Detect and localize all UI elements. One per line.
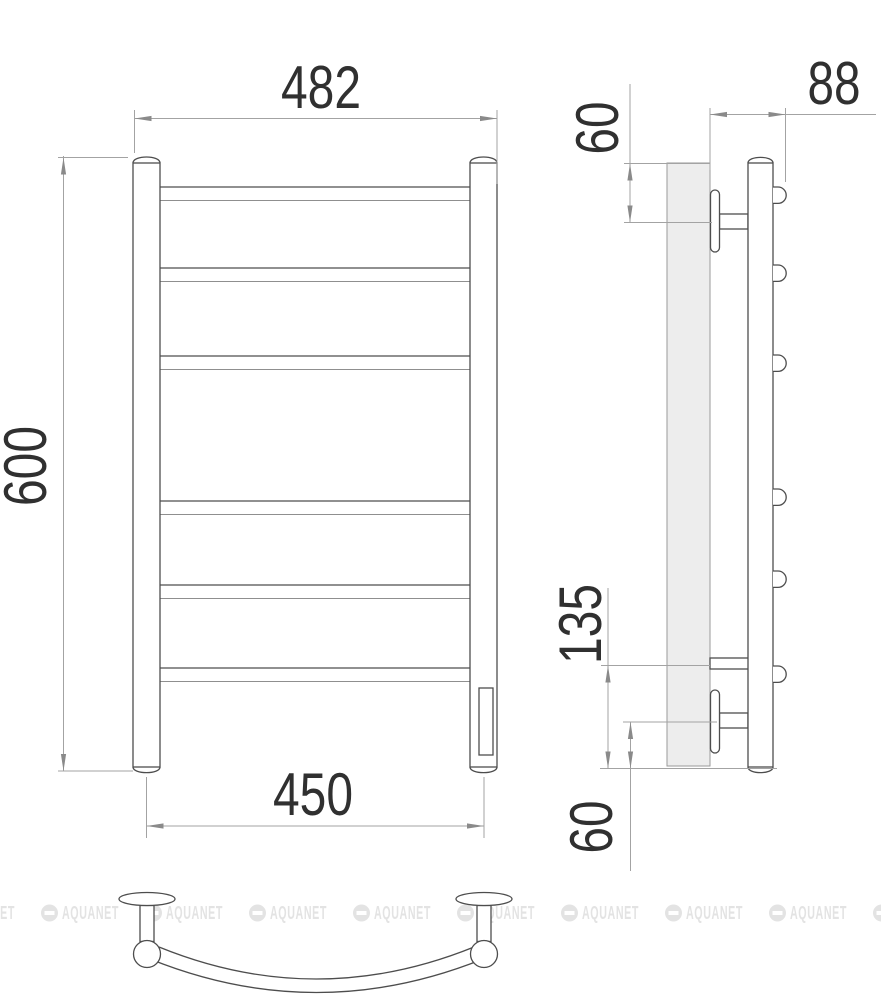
watermark-item: AQUANET [665, 903, 743, 923]
rung [160, 268, 470, 282]
rung [160, 668, 470, 682]
watermark-item: AQUANET [249, 903, 327, 923]
bottom-bracket [710, 658, 749, 753]
watermark-logo-bar [253, 911, 263, 915]
watermark-logo-bar [669, 911, 679, 915]
rung [160, 356, 470, 370]
wall-plate [667, 163, 710, 766]
front-view: 482 600 450 [0, 54, 497, 838]
side-rung-ends [773, 187, 786, 682]
dimension-front-top-width: 482 [135, 54, 498, 184]
curved-rung-bottom-edge [150, 959, 483, 993]
right-post-section [471, 941, 498, 968]
dimension-label-side-lower-span: 135 [547, 584, 614, 664]
heating-element-indicator [479, 688, 493, 755]
watermark-item: AQUANET [353, 903, 431, 923]
watermark-logo-bar [45, 911, 55, 915]
watermark-text: AQUANET [62, 903, 119, 923]
top-bracket [711, 190, 749, 252]
watermark-text: AQUANET [0, 903, 15, 923]
watermark-logo-bar [877, 911, 881, 915]
towel-rail-drawing: AQUANETAQUANETAQUANETAQUANETAQUANETAQUAN… [0, 0, 881, 1000]
watermark-logo-bar [565, 911, 575, 915]
watermark-item: AQUANET [769, 903, 847, 923]
side-view: 88 60 135 60 [547, 50, 876, 871]
watermark-item: AQUANET [0, 903, 15, 923]
watermark-text: AQUANET [166, 903, 223, 923]
watermark-logo-bar [773, 911, 783, 915]
dimension-side-depth: 88 [710, 50, 876, 182]
watermark-item: AQUANET [561, 903, 639, 923]
dimension-label-front-top-width: 482 [281, 54, 361, 121]
bottom-view-right-mount [456, 893, 512, 968]
dimension-front-bottom-width: 450 [147, 761, 485, 838]
rung [160, 585, 470, 599]
watermark-item: AQUANET [873, 903, 881, 923]
watermark-item: AQUANET [41, 903, 119, 923]
rung [160, 501, 470, 515]
watermark-row: AQUANETAQUANETAQUANETAQUANETAQUANETAQUAN… [0, 903, 881, 923]
watermark-item: AQUANET [145, 903, 223, 923]
dimension-label-side-top-offset: 60 [564, 102, 631, 155]
dimension-label-side-depth: 88 [808, 50, 861, 117]
watermark-text: AQUANET [686, 903, 743, 923]
left-post [133, 157, 160, 773]
curved-rung-top-edge [159, 947, 474, 979]
technical-drawing-page: AQUANETAQUANETAQUANETAQUANETAQUANETAQUAN… [0, 0, 881, 1000]
rung [160, 187, 470, 201]
dimension-label-front-height: 600 [0, 426, 59, 506]
watermark-text: AQUANET [582, 903, 639, 923]
dimension-side-lower-span: 135 [547, 584, 777, 769]
watermark-text: AQUANET [790, 903, 847, 923]
right-post [470, 157, 497, 773]
left-post-section [134, 941, 161, 968]
dimension-label-side-bottom-offset: 60 [558, 801, 625, 854]
watermark-logo-bar [357, 911, 367, 915]
watermark-text: AQUANET [270, 903, 327, 923]
side-post [748, 157, 773, 772]
dimension-label-front-bottom-width: 450 [273, 761, 353, 828]
bottom-view-left-mount [119, 893, 175, 968]
watermark-logo-bar [461, 911, 471, 915]
dimension-front-height: 600 [0, 156, 133, 771]
front-rungs [160, 187, 470, 682]
watermark-item: AQUANET [457, 903, 535, 923]
watermark-text: AQUANET [374, 903, 431, 923]
